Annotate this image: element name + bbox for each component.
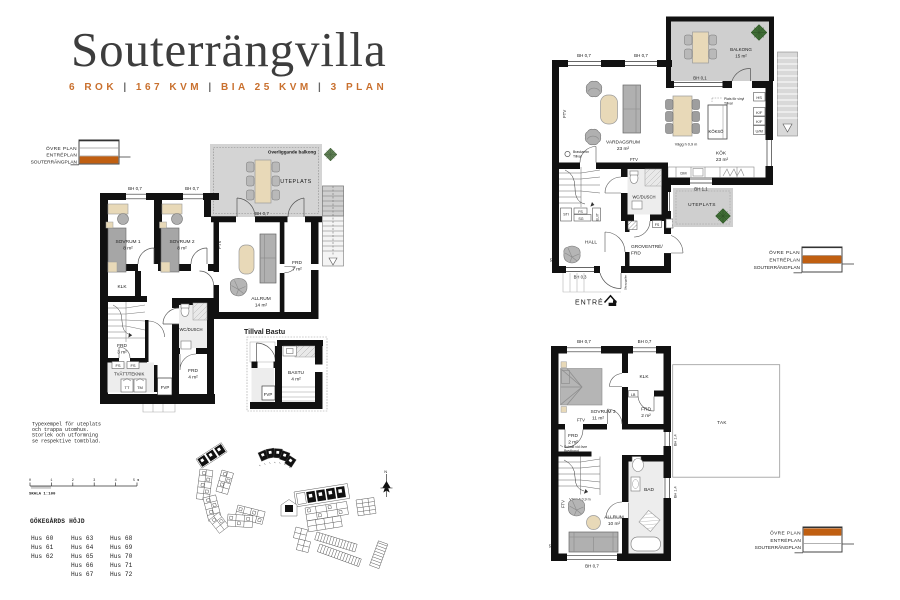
svg-text:U/M: U/M [756, 129, 763, 134]
svg-text:4: 4 [115, 479, 117, 483]
svg-text:ALLRUM: ALLRUM [251, 296, 270, 302]
svg-text:10 m²: 10 m² [608, 521, 621, 527]
svg-text:FRD: FRD [188, 368, 198, 374]
svg-text:KÖK: KÖK [716, 150, 727, 157]
svg-text:Hus 65: Hus 65 [71, 553, 94, 560]
svg-text:Hus 64: Hus 64 [71, 544, 94, 551]
svg-text:N: N [384, 469, 387, 474]
svg-text:Braskamin: Braskamin [573, 150, 589, 154]
svg-text:K/F: K/F [756, 110, 763, 115]
svg-text:FTV: FTV [561, 500, 566, 508]
svg-text:0: 0 [29, 479, 31, 483]
svg-text:FRD: FRD [568, 433, 578, 439]
svg-text:HALL: HALL [585, 240, 597, 246]
svg-text:23 m²: 23 m² [716, 157, 729, 163]
svg-text:ENTRÉPLAN: ENTRÉPLAN [770, 537, 801, 544]
svg-text:FTV: FTV [217, 239, 222, 249]
svg-text:BH 0,7: BH 0,7 [255, 211, 269, 216]
svg-text:DM: DM [680, 171, 686, 176]
svg-text:FTV: FTV [577, 418, 585, 423]
svg-text:FTV: FTV [562, 110, 567, 118]
svg-text:ENTRÉPLAN: ENTRÉPLAN [46, 152, 77, 159]
svg-text:TT: TT [125, 385, 130, 390]
svg-text:FRD: FRD [641, 407, 651, 413]
svg-text:S5: S5 [549, 544, 553, 548]
svg-text:3 m²: 3 m² [117, 350, 127, 356]
svg-text:BH 1,4: BH 1,4 [674, 434, 678, 446]
svg-text:7 m²: 7 m² [292, 267, 302, 273]
svg-text:se respektive tomtblad.: se respektive tomtblad. [32, 438, 101, 444]
svg-text:SG: SG [578, 217, 583, 221]
svg-text:FS: FS [115, 363, 120, 368]
svg-text:Hus 63: Hus 63 [71, 535, 94, 542]
svg-text:Hus 62: Hus 62 [31, 553, 54, 560]
svg-text:Skrapgaller: Skrapgaller [624, 275, 628, 290]
svg-text:4 m²: 4 m² [291, 377, 301, 383]
svg-text:EL/IT: EL/IT [596, 213, 600, 221]
svg-text:FRD: FRD [117, 343, 127, 349]
svg-text:3: 3 [93, 479, 95, 483]
svg-text:FS: FS [578, 210, 583, 214]
svg-text:BH 0,7: BH 0,7 [577, 339, 591, 344]
svg-text:Hus 68: Hus 68 [110, 535, 133, 542]
svg-text:SOUTERRÄNGPLAN: SOUTERRÄNGPLAN [755, 544, 802, 551]
svg-text:Hus 71: Hus 71 [110, 562, 133, 569]
svg-text:BH 0,7: BH 0,7 [185, 186, 199, 191]
svg-text:BASTU: BASTU [288, 370, 305, 376]
svg-text:SKALA 1:100: SKALA 1:100 [29, 493, 56, 497]
svg-text:Souterrängvilla: Souterrängvilla [71, 22, 387, 77]
svg-text:BH 1,4: BH 1,4 [674, 486, 678, 498]
svg-text:TAK: TAK [717, 420, 727, 425]
svg-text:BH 0,7: BH 0,7 [585, 564, 599, 569]
svg-text:FVP: FVP [161, 385, 170, 390]
svg-text:Hus 66: Hus 66 [71, 562, 94, 569]
svg-text:Overliggande balkong: Overliggande balkong [268, 150, 316, 155]
svg-text:ÖVRE PLAN: ÖVRE PLAN [770, 529, 801, 536]
svg-text:2 m²: 2 m² [641, 413, 651, 419]
svg-text:1: 1 [50, 479, 52, 483]
svg-text:KLK: KLK [639, 374, 649, 380]
svg-text:ÖVRE PLAN: ÖVRE PLAN [769, 249, 800, 256]
svg-text:8 m²: 8 m² [123, 246, 133, 252]
svg-text:5 m: 5 m [133, 479, 139, 483]
svg-text:KÖKSÖ: KÖKSÖ [709, 129, 725, 134]
svg-text:23 m²: 23 m² [617, 146, 630, 152]
svg-text:FS: FS [130, 363, 135, 368]
svg-text:FS: FS [655, 223, 660, 227]
svg-text:TVÄTT/TEKNIK: TVÄTT/TEKNIK [114, 372, 144, 377]
svg-text:FRD: FRD [292, 260, 302, 266]
svg-text:BH 0,7: BH 0,7 [577, 53, 591, 58]
svg-text:ENTRÉPLAN: ENTRÉPLAN [769, 256, 800, 263]
svg-text:WC/DUSCH: WC/DUSCH [632, 195, 655, 200]
svg-text:ÖVRE PLAN: ÖVRE PLAN [46, 145, 77, 152]
svg-text:K/F: K/F [756, 119, 763, 124]
svg-text:Tillval: Tillval [724, 101, 733, 105]
svg-text:BH 0,7: BH 0,7 [128, 186, 142, 191]
svg-text:8 m²: 8 m² [177, 246, 187, 252]
svg-text:Hus 69: Hus 69 [110, 544, 133, 551]
svg-text:BAD: BAD [644, 487, 654, 493]
svg-text:TM: TM [137, 385, 143, 390]
svg-text:BH 0,1: BH 0,1 [693, 76, 707, 81]
svg-text:SOVRUM 1: SOVRUM 1 [115, 239, 140, 245]
svg-text:Hus 70: Hus 70 [110, 553, 133, 560]
svg-text:Hus 67: Hus 67 [71, 571, 94, 578]
svg-text:GÖKEGÅRDS HÖJD: GÖKEGÅRDS HÖJD [30, 518, 85, 525]
svg-text:BH 0,3: BH 0,3 [574, 275, 587, 280]
svg-text:WC/DUSCH: WC/DUSCH [179, 327, 202, 332]
svg-text:ALLRUM: ALLRUM [604, 515, 623, 521]
svg-text:BH 0,7: BH 0,7 [634, 53, 648, 58]
svg-text:UTEPLATS: UTEPLATS [688, 202, 716, 208]
svg-text:BH 0,7: BH 0,7 [638, 339, 652, 344]
svg-text:HS: HS [756, 95, 762, 100]
svg-text:Vägg h 0,9 m: Vägg h 0,9 m [675, 143, 698, 147]
svg-text:FTV: FTV [630, 157, 638, 162]
svg-text:SOUTERRÄNGPLAN: SOUTERRÄNGPLAN [31, 158, 78, 165]
svg-text:Hus 61: Hus 61 [31, 544, 54, 551]
svg-text:6 ROK | 167 KVM | BIA 25 KVM |: 6 ROK | 167 KVM | BIA 25 KVM | 3 PLAN [69, 82, 387, 93]
svg-text:VARDAGSRUM: VARDAGSRUM [606, 140, 640, 146]
svg-text:SOVRUM 2: SOVRUM 2 [169, 239, 194, 245]
svg-text:Hus 72: Hus 72 [110, 571, 133, 578]
svg-text:ENTRÉ: ENTRÉ [575, 298, 604, 307]
svg-text:FVP: FVP [264, 392, 273, 397]
svg-text:14 m²: 14 m² [255, 303, 268, 309]
svg-text:15 m²: 15 m² [735, 54, 747, 59]
svg-text:BH 1,1: BH 1,1 [694, 187, 708, 192]
svg-text:2: 2 [72, 479, 74, 483]
svg-text:BALKONG: BALKONG [730, 47, 752, 52]
svg-text:11 m²: 11 m² [592, 415, 604, 421]
svg-text:4 m²: 4 m² [188, 375, 198, 381]
svg-text:KLK: KLK [117, 284, 127, 290]
svg-text:GROVENTRÉ/: GROVENTRÉ/ [631, 243, 663, 250]
svg-text:LB: LB [631, 393, 636, 397]
svg-text:STI: STI [563, 213, 569, 217]
svg-text:S5: S5 [550, 258, 554, 262]
svg-text:Tillval Bastu: Tillval Bastu [244, 329, 285, 336]
svg-text:FRD: FRD [631, 251, 641, 257]
svg-text:SOUTERRÄNGPLAN: SOUTERRÄNGPLAN [754, 264, 801, 271]
svg-text:UTEPLATS: UTEPLATS [280, 179, 311, 185]
svg-text:Plats för vinyl: Plats för vinyl [724, 97, 744, 101]
svg-text:Hus 60: Hus 60 [31, 535, 54, 542]
